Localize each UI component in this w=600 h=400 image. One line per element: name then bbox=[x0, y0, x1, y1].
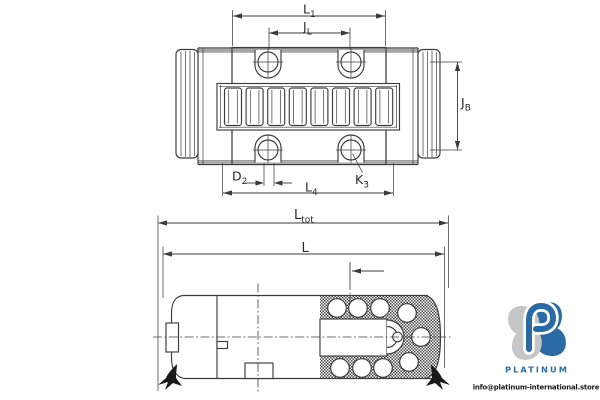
label-jb: JB bbox=[460, 95, 471, 114]
dimension-l1: L1 bbox=[233, 2, 386, 47]
label-ltot: Ltot bbox=[294, 208, 314, 226]
top-view-drawing: L1 JL JB D2 bbox=[176, 2, 471, 199]
label-d2: D2 bbox=[232, 169, 247, 188]
label-k3: K3 bbox=[355, 172, 369, 191]
label-l: L bbox=[302, 241, 310, 256]
technical-drawing: L1 JL JB D2 bbox=[0, 0, 600, 400]
watermark: PLATINUM info@platinum-international.sto… bbox=[473, 302, 600, 391]
dimension-d2: D2 bbox=[232, 163, 292, 187]
left-seal-ribs bbox=[176, 50, 198, 159]
roller-band bbox=[217, 84, 400, 131]
bearing-drawing-page: L1 JL JB D2 bbox=[0, 0, 600, 400]
email-text: info@platinum-international.store bbox=[473, 384, 600, 392]
right-seal-ribs bbox=[418, 50, 440, 159]
left-seal-lip bbox=[158, 364, 182, 390]
label-jl: JL bbox=[302, 19, 312, 38]
platinum-logo bbox=[508, 302, 566, 360]
brand-text: PLATINUM bbox=[505, 365, 569, 375]
dimension-jl: JL bbox=[269, 19, 350, 49]
label-l1: L1 bbox=[303, 2, 316, 21]
label-l4: L4 bbox=[305, 180, 318, 199]
side-section-view: Ltot L bbox=[153, 208, 451, 394]
